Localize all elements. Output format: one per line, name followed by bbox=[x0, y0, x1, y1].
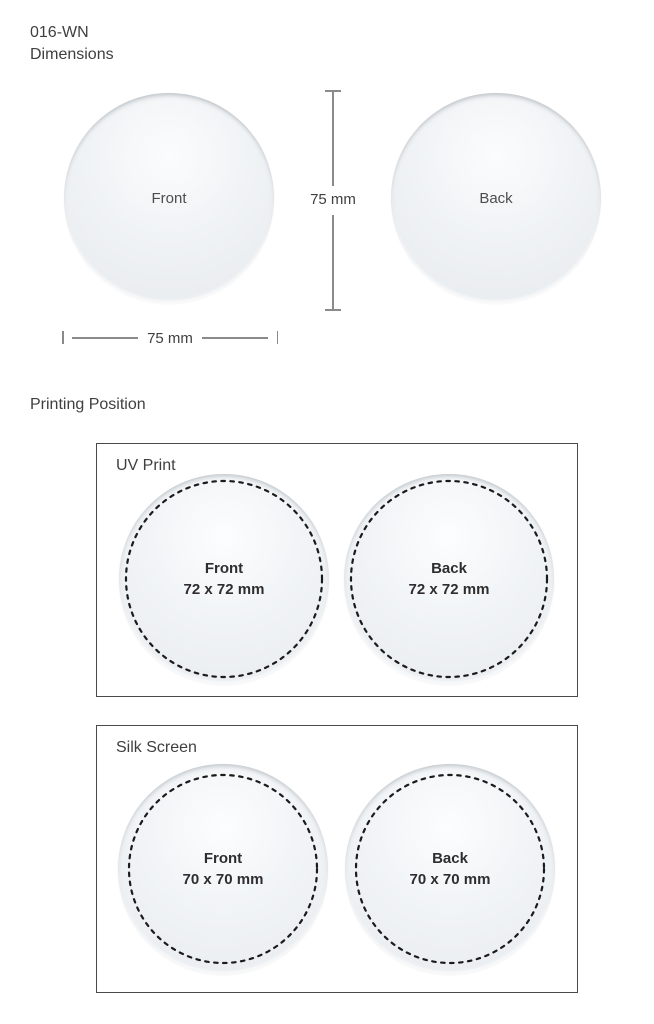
dimension-line bbox=[332, 92, 334, 186]
silk-front-print-label: Front 70 x 70 mm bbox=[183, 848, 264, 890]
uv-back-print-label: Back 72 x 72 mm bbox=[409, 558, 490, 600]
silk-front-print-area: Front 70 x 70 mm bbox=[118, 764, 328, 974]
uv-back-size-label: 72 x 72 mm bbox=[409, 579, 490, 600]
silk-back-print-area: Back 70 x 70 mm bbox=[345, 764, 555, 974]
product-code: 016-WN bbox=[30, 22, 114, 44]
uv-front-side-label: Front bbox=[184, 558, 265, 579]
spec-sheet: 016-WN Dimensions Front Back 75 mm 75 mm… bbox=[0, 0, 654, 1024]
silk-front-size-label: 70 x 70 mm bbox=[183, 869, 264, 890]
width-dimension-label: 75 mm bbox=[147, 330, 193, 347]
uv-print-box: UV Print Front 72 x 72 mm Back 72 x 72 m… bbox=[96, 443, 578, 697]
dimension-tick-right bbox=[277, 331, 279, 344]
dimension-cap-bottom bbox=[325, 309, 341, 311]
dimension-line bbox=[332, 215, 334, 309]
silk-screen-box: Silk Screen Front 70 x 70 mm Back 70 x 7… bbox=[96, 725, 578, 993]
height-dimension: 75 mm bbox=[325, 90, 341, 311]
front-coaster-label: Front bbox=[151, 190, 186, 207]
back-coaster-label: Back bbox=[479, 190, 512, 207]
dimension-line bbox=[72, 337, 138, 339]
back-coaster: Back bbox=[391, 93, 601, 303]
silk-back-print-label: Back 70 x 70 mm bbox=[410, 848, 491, 890]
silk-back-side-label: Back bbox=[410, 848, 491, 869]
uv-print-label: UV Print bbox=[116, 457, 176, 475]
uv-back-side-label: Back bbox=[409, 558, 490, 579]
printing-position-heading: Printing Position bbox=[30, 396, 146, 414]
width-dimension: 75 mm bbox=[62, 330, 278, 346]
height-dimension-label: 75 mm bbox=[310, 191, 356, 208]
uv-front-size-label: 72 x 72 mm bbox=[184, 579, 265, 600]
dimensions-heading: Dimensions bbox=[30, 44, 114, 66]
silk-screen-label: Silk Screen bbox=[116, 739, 197, 757]
uv-front-print-area: Front 72 x 72 mm bbox=[119, 474, 329, 684]
uv-back-print-area: Back 72 x 72 mm bbox=[344, 474, 554, 684]
front-coaster: Front bbox=[64, 93, 274, 303]
silk-front-side-label: Front bbox=[183, 848, 264, 869]
dimension-tick-left bbox=[62, 331, 64, 344]
page-header: 016-WN Dimensions bbox=[30, 22, 114, 66]
uv-front-print-label: Front 72 x 72 mm bbox=[184, 558, 265, 600]
silk-back-size-label: 70 x 70 mm bbox=[410, 869, 491, 890]
dimension-line bbox=[202, 337, 268, 339]
